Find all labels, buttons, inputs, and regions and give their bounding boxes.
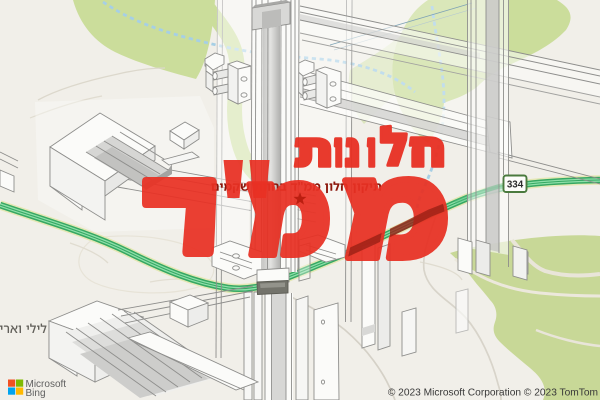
svg-text:© 2023 Microsoft Corporation ©: © 2023 Microsoft Corporation © 2023 TomT… (388, 388, 598, 399)
svg-text:Bing: Bing (26, 388, 46, 399)
svg-text:334: 334 (507, 179, 524, 190)
